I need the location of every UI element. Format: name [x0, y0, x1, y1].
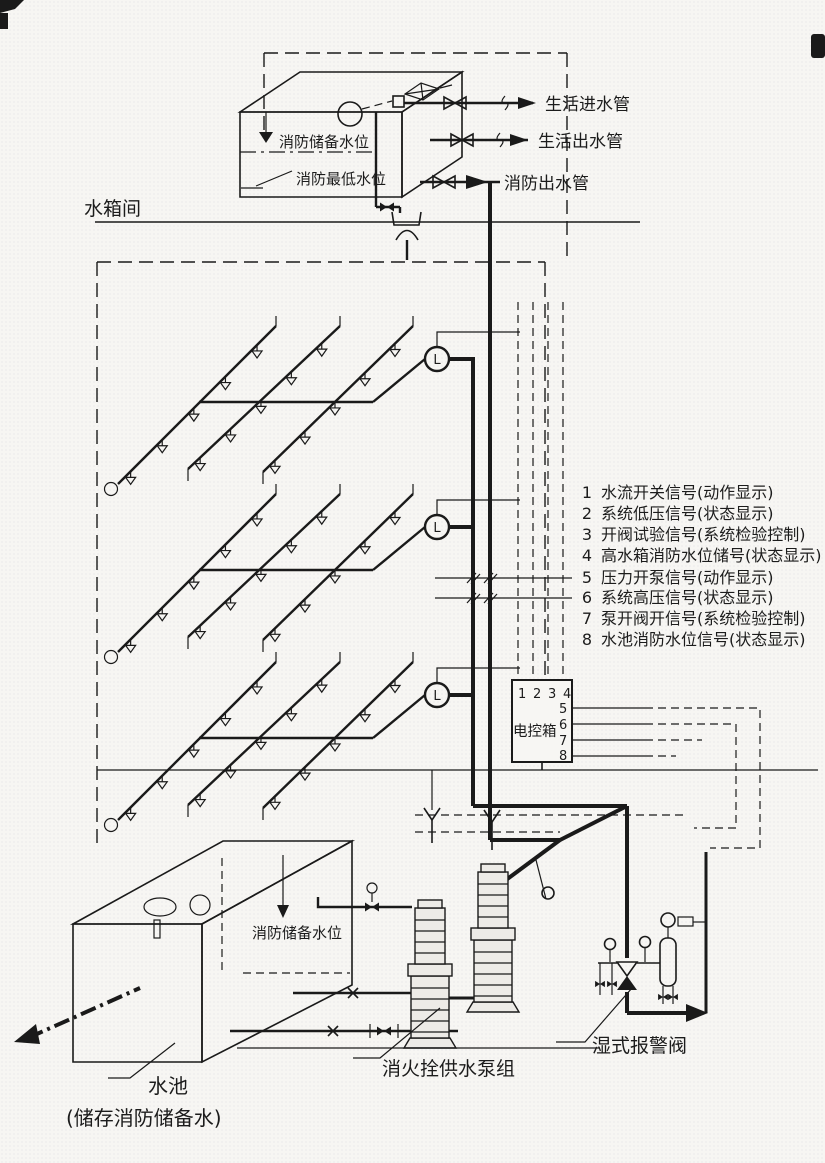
legend-item: 系统高压信号(状态显示) [601, 588, 774, 607]
flow-switch-signal-line [437, 332, 520, 347]
pressure-gauge-1 [605, 939, 616, 950]
pump-group-label: 消火拴供水泵组 [382, 1058, 515, 1080]
legend-no: 4 [582, 546, 592, 565]
branch-pipe [263, 494, 413, 640]
tank-room-dashed-boundary [264, 53, 567, 262]
fire-pump-2 [467, 864, 519, 1012]
signal-dashed-lines [518, 302, 563, 678]
pressure-gauge-2 [640, 937, 651, 948]
legend-item: 泵开阀开信号(系统检验控制) [601, 609, 806, 628]
flow-indicator-label-1: L [433, 353, 441, 368]
room-label: 水箱间 [84, 198, 141, 220]
scan-artifacts [0, 0, 825, 58]
wet-alarm-valve-label: 湿式报警阀 [592, 1035, 687, 1057]
domestic-inlet-pipe-label: 生活进水管 [545, 95, 630, 115]
fire-pump-group [237, 860, 600, 1048]
sprinkler-floor-3 [105, 652, 521, 832]
fire-reservoir-pool [14, 841, 412, 1062]
branch-pipe [188, 662, 340, 805]
tank-lowest-level-label: 消防最低水位 [296, 170, 386, 188]
inlet-flow-line [28, 988, 140, 1038]
alarm-valve-lower [617, 976, 637, 990]
level-sensor-port-1 [144, 898, 176, 916]
branch-end-cap [105, 483, 118, 496]
control-box-label: 电控箱 [513, 723, 557, 740]
port-8: 8 [559, 749, 567, 764]
legend-no: 3 [582, 525, 592, 544]
branch-pipe [263, 326, 413, 472]
port-2: 2 [533, 687, 541, 702]
port-1: 1 [518, 687, 526, 702]
legend-no: 8 [582, 630, 592, 649]
schematic-canvas: 水箱间 消防储备水位 消防最低水位 生活进水管 生活出水管 消防出水管 1 水流… [0, 0, 825, 1163]
port-6: 6 [559, 718, 567, 733]
pool-note-label: (储存消防储备水) [66, 1106, 222, 1130]
pool-reserve-level-label: 消防储备水位 [252, 924, 342, 942]
legend-no: 1 [582, 483, 592, 502]
domestic-outlet-pipe-label: 生活出水管 [538, 132, 623, 152]
pool-reserve-level-marker [277, 855, 289, 918]
water-motor-alarm [661, 913, 675, 927]
branch-pipe [188, 494, 340, 637]
fire-protection-schematic: 水箱间 消防储备水位 消防最低水位 生活进水管 生活出水管 消防出水管 1 水流… [0, 0, 825, 1163]
sprinkler-floor-1 [105, 316, 521, 496]
float-ball [338, 102, 362, 126]
fire-outlet-pipe-label: 消防出水管 [504, 174, 589, 194]
float-valve [393, 96, 404, 107]
inlet-arrow [14, 1024, 40, 1044]
port-7: 7 [559, 734, 567, 749]
pressure-switch [678, 917, 693, 926]
legend-item: 水池消防水位信号(状态显示) [601, 630, 806, 649]
branch-pipe [188, 326, 340, 469]
pool-name-label: 水池 [148, 1074, 188, 1098]
alarm-valve-upper [617, 962, 637, 976]
flow-indicator-label-3: L [433, 689, 441, 704]
legend-no: 5 [582, 568, 592, 587]
pump-discharge-pipe [506, 840, 560, 880]
legend-item: 水流开关信号(动作显示) [601, 483, 774, 502]
legend-no: 6 [582, 588, 592, 607]
pool-fill-pipe [318, 883, 412, 912]
legend-item: 系统低压信号(状态显示) [601, 504, 774, 523]
legend-no: 2 [582, 504, 592, 523]
valve-indicator [367, 883, 377, 893]
sprinkler-floor-2 [105, 484, 521, 664]
legend-no: 7 [582, 609, 592, 628]
signal-legend: 1 水流开关信号(动作显示) 2 系统低压信号(状态显示) 3 开阀试验信号(系… [582, 483, 822, 649]
port-3: 3 [548, 687, 556, 702]
wet-alarm-valve-assembly [595, 913, 706, 1004]
port-4: 4 [563, 687, 571, 702]
fire-pump-1 [404, 900, 456, 1048]
tank-reserve-level-label: 消防储备水位 [279, 133, 369, 151]
legend-item: 开阀试验信号(系统检验控制) [601, 525, 806, 544]
tank-drain-assembly [376, 203, 421, 261]
sprinkler-floors [105, 316, 521, 832]
pressure-signal-taps [435, 573, 572, 604]
retard-chamber [660, 938, 676, 986]
legend-item: 高水箱消防水位储号(状态显示) [601, 546, 822, 565]
branch-end-cap [105, 651, 118, 664]
branch-end-cap [105, 819, 118, 832]
tank-lowest-level-marker [241, 171, 292, 188]
flow-switch-signal-line [437, 500, 520, 515]
port-5: 5 [559, 702, 567, 717]
level-sensor-port-2 [190, 895, 210, 915]
flow-indicator-label-2: L [433, 521, 441, 536]
branch-pipe [263, 662, 413, 808]
flow-switch-signal-line [437, 668, 520, 683]
legend-item: 压力开泵信号(动作显示) [601, 568, 774, 587]
